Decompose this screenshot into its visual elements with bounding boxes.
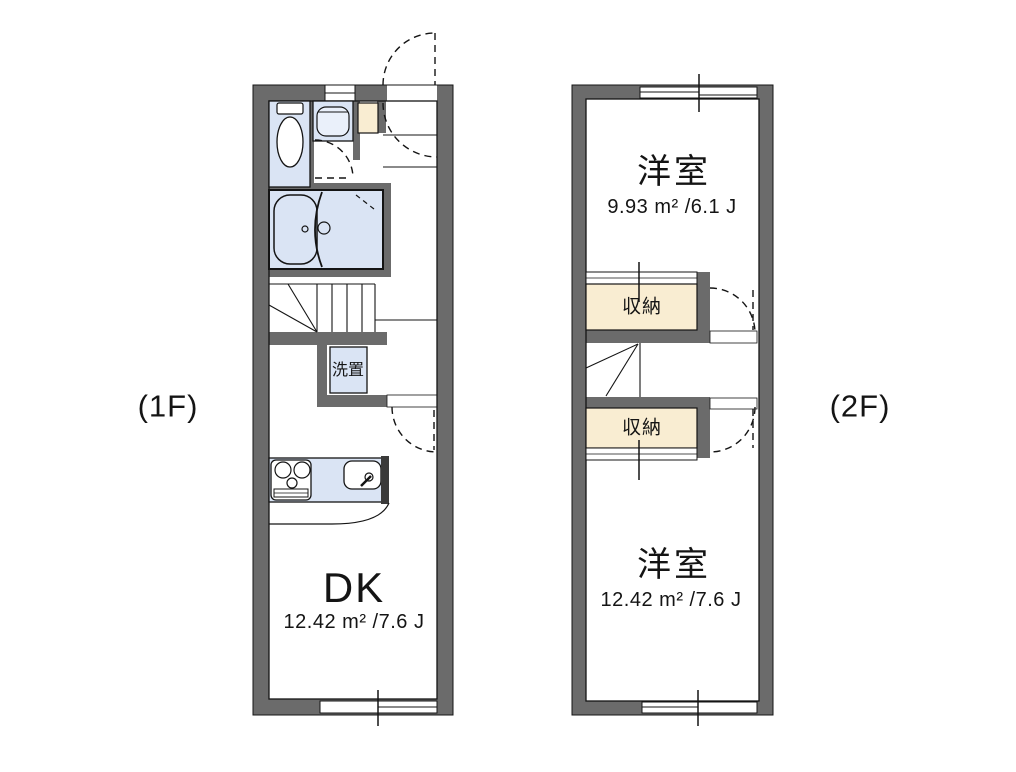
kitchen (269, 456, 389, 524)
closet-upper-door-swing (710, 288, 755, 333)
room-label-dk: DK (323, 567, 385, 609)
room-area-bedroom-lower: 12.42 m² /7.6 J (601, 590, 742, 610)
stairs-2f (586, 343, 640, 397)
closet-upper-doorway (710, 331, 757, 343)
window-bottom-2f (642, 690, 757, 726)
stove-icon (271, 460, 311, 500)
entry-opening (387, 85, 437, 101)
stair-hall-doorway (710, 398, 757, 409)
sink-icon (344, 461, 381, 489)
floor-label-2f: (2F) (830, 391, 891, 422)
entry-door-swing (383, 33, 435, 85)
toilet-tank-icon (277, 103, 303, 114)
window-top-2f (640, 74, 757, 112)
toilet-bowl-icon (277, 117, 303, 167)
room-area-dk: 12.42 m² /7.6 J (284, 612, 425, 632)
floorplan-drawing (0, 0, 1016, 772)
stair-bottom-wall (253, 332, 387, 345)
room-label-bedroom-upper: 洋室 (637, 155, 711, 189)
floor-label-1f: (1F) (138, 391, 199, 422)
stairs-1f (269, 284, 437, 332)
closet-lower-label: 収納 (622, 419, 662, 438)
dk-door-swing (392, 407, 437, 452)
toilet-room (269, 101, 310, 187)
entry-inner-door-swing (383, 103, 437, 157)
washroom-door-swing (315, 140, 353, 178)
washbasin-icon (317, 107, 349, 136)
closet-lower-door-swing (710, 407, 755, 452)
window-bottom-1f (320, 690, 437, 726)
shoe-cabinet (358, 103, 378, 133)
counter-end-panel (381, 456, 389, 504)
bathroom (269, 190, 383, 269)
entry-step-lines (383, 135, 437, 167)
closet-upper-label: 収納 (622, 298, 662, 317)
small-window-top-1f (325, 85, 355, 101)
room-area-bedroom-upper: 9.93 m² /6.1 J (607, 197, 736, 217)
door-swings-2f (710, 288, 755, 452)
room-label-bedroom-lower: 洋室 (637, 548, 711, 582)
kitchen-boundary-curve (269, 503, 389, 524)
floorplan-canvas: (1F) (2F) DK 12.42 m² /7.6 J 洗置 洋室 9.93 … (0, 0, 1016, 772)
washbasin-room (313, 101, 353, 141)
dk-doorway (387, 395, 437, 407)
room-label-laundry: 洗置 (332, 363, 364, 379)
